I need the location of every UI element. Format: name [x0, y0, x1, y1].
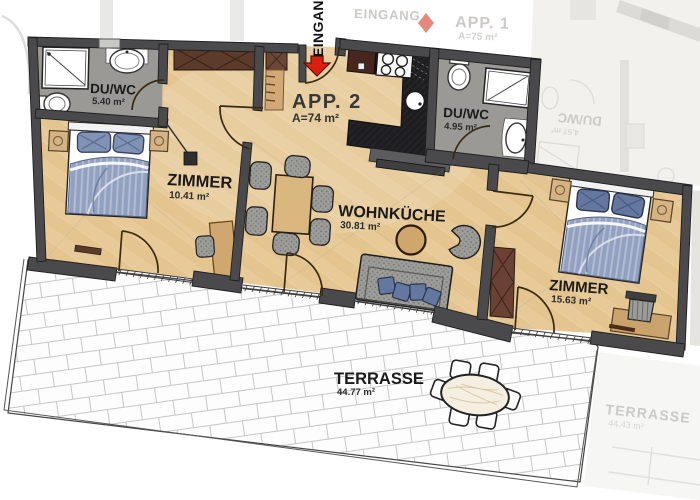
svg-text:30.81 m²: 30.81 m²: [340, 220, 381, 233]
svg-text:5.40 m²: 5.40 m²: [92, 96, 125, 108]
svg-text:TERRASSE: TERRASSE: [334, 370, 424, 388]
svg-text:ZIMMER: ZIMMER: [167, 171, 233, 192]
svg-text:A=75 m²: A=75 m²: [458, 31, 498, 43]
svg-text:10.41 m²: 10.41 m²: [169, 190, 210, 203]
svg-text:APP. 2: APP. 2: [292, 91, 362, 113]
svg-text:EINGANG: EINGANG: [310, 0, 326, 57]
svg-text:DU/WC: DU/WC: [443, 105, 490, 122]
svg-text:EINGANG: EINGANG: [354, 6, 421, 23]
svg-text:APP. 1: APP. 1: [455, 14, 510, 33]
svg-text:4.95 m²: 4.95 m²: [444, 121, 477, 134]
svg-text:DU/WC: DU/WC: [90, 81, 136, 98]
svg-text:A=74 m²: A=74 m²: [292, 111, 339, 125]
svg-text:44.77 m²: 44.77 m²: [337, 387, 375, 398]
